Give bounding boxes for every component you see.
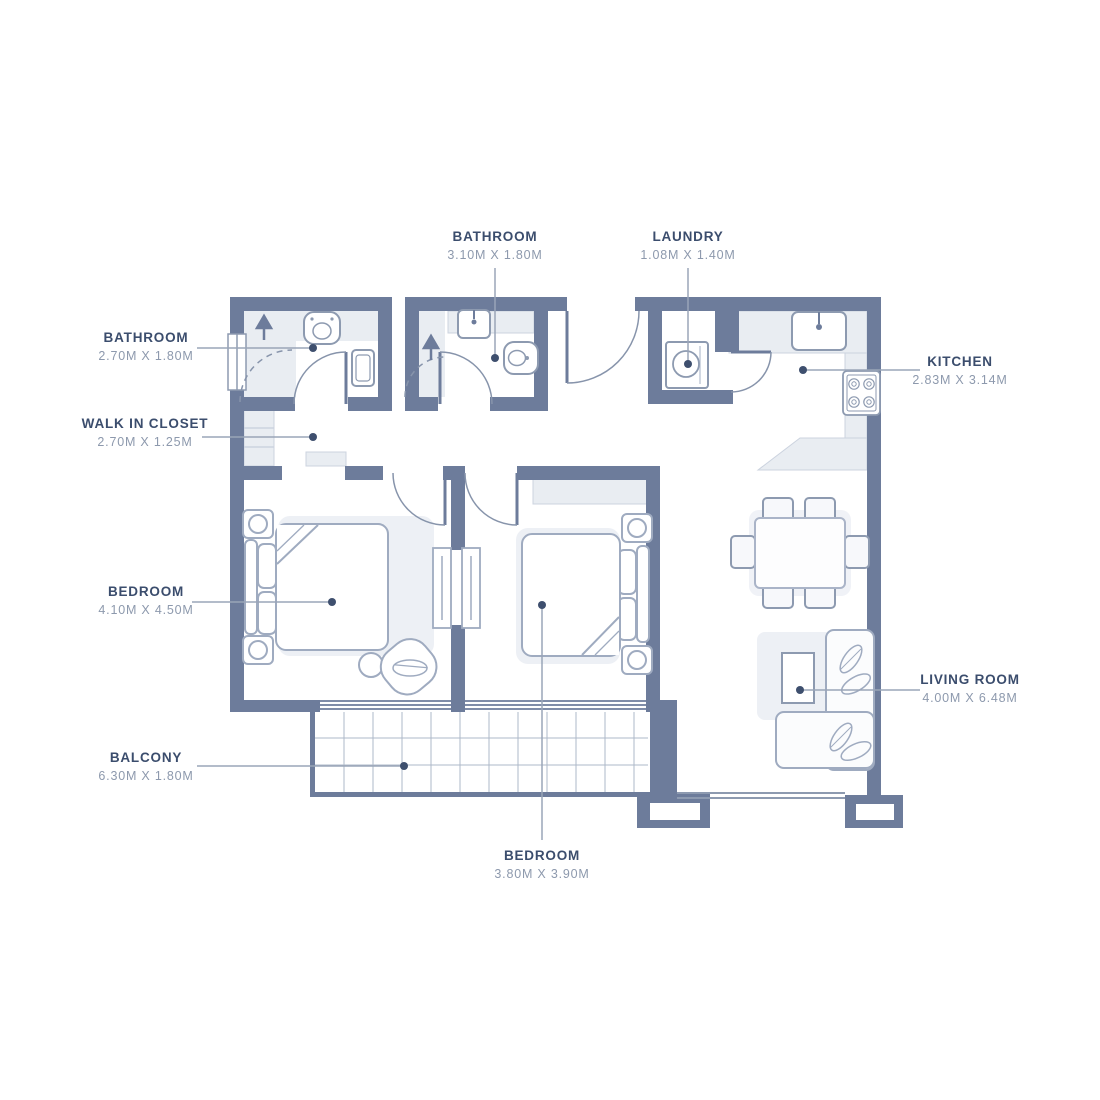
door-arc <box>294 352 346 404</box>
floor-plan-drawing <box>0 0 1100 1100</box>
kitchen-counter-bottom <box>758 438 867 470</box>
headboard <box>245 540 257 634</box>
dining-chair <box>845 536 869 568</box>
side-table <box>359 653 383 677</box>
door-arc <box>465 473 517 525</box>
room-name: BEDROOM <box>98 584 193 599</box>
balcony-tiles <box>315 712 648 792</box>
balcony-wall-bottom <box>310 792 650 797</box>
door-arc <box>731 352 771 392</box>
room-name: BATHROOM <box>98 330 193 345</box>
balcony-wall-left <box>310 712 315 797</box>
room-name: BALCONY <box>98 750 193 765</box>
dining-chair <box>731 536 755 568</box>
bedroom2-furniture <box>462 514 652 674</box>
room-dimensions: 2.83M X 3.14M <box>912 373 1007 387</box>
toilet-icon <box>504 342 538 374</box>
room-label-bathroom-left: BATHROOM 2.70M X 1.80M <box>98 330 193 363</box>
window <box>228 334 246 390</box>
room-dimensions: 4.10M X 4.50M <box>98 603 193 617</box>
room-dimensions: 6.30M X 1.80M <box>98 769 193 783</box>
room-label-bedroom-1: BEDROOM 4.10M X 4.50M <box>98 584 193 617</box>
room-label-laundry: LAUNDRY 1.08M X 1.40M <box>640 229 735 262</box>
room-dimensions: 2.70M X 1.25M <box>82 435 209 449</box>
balcony-area <box>310 701 650 797</box>
room-name: KITCHEN <box>912 354 1007 369</box>
door-arc <box>440 352 492 404</box>
room-dimensions: 4.00M X 6.48M <box>920 691 1020 705</box>
room-dimensions: 3.10M X 1.80M <box>447 248 542 262</box>
entry-door-arc <box>567 311 639 383</box>
sliding-door <box>315 701 650 709</box>
room-dimensions: 3.80M X 3.90M <box>494 867 589 881</box>
room-name: LAUNDRY <box>640 229 735 244</box>
room-label-bathroom-top: BATHROOM 3.10M X 1.80M <box>447 229 542 262</box>
room-name: BATHROOM <box>447 229 542 244</box>
room-label-kitchen: KITCHEN 2.83M X 3.14M <box>912 354 1007 387</box>
toilet-icon <box>304 312 340 344</box>
floor-plan-page: BATHROOM 3.10M X 1.80M LAUNDRY 1.08M X 1… <box>0 0 1100 1100</box>
room-label-bedroom-2: BEDROOM 3.80M X 3.90M <box>494 848 589 881</box>
bed-pillow <box>258 592 276 634</box>
room-label-walk-in-closet: WALK IN CLOSET 2.70M X 1.25M <box>82 416 209 449</box>
room-name: WALK IN CLOSET <box>82 416 209 431</box>
room-dimensions: 2.70M X 1.80M <box>98 349 193 363</box>
room-dimensions: 1.08M X 1.40M <box>640 248 735 262</box>
room-name: BEDROOM <box>494 848 589 863</box>
sink-icon <box>458 310 490 338</box>
kitchen-sink-icon <box>792 312 846 350</box>
bed-pillow <box>258 544 276 588</box>
column-inset <box>650 803 700 820</box>
sofa-chaise <box>776 712 874 768</box>
room-label-balcony: BALCONY 6.30M X 1.80M <box>98 750 193 783</box>
headboard <box>637 546 649 642</box>
room-name: LIVING ROOM <box>920 672 1020 687</box>
closet-shelf <box>306 452 346 466</box>
coffee-table <box>782 653 814 703</box>
dining-table <box>755 518 845 588</box>
column-inset <box>856 804 894 820</box>
room-label-living-room: LIVING ROOM 4.00M X 6.48M <box>920 672 1020 705</box>
sink-icon <box>352 350 374 386</box>
stove-icon <box>843 371 880 415</box>
